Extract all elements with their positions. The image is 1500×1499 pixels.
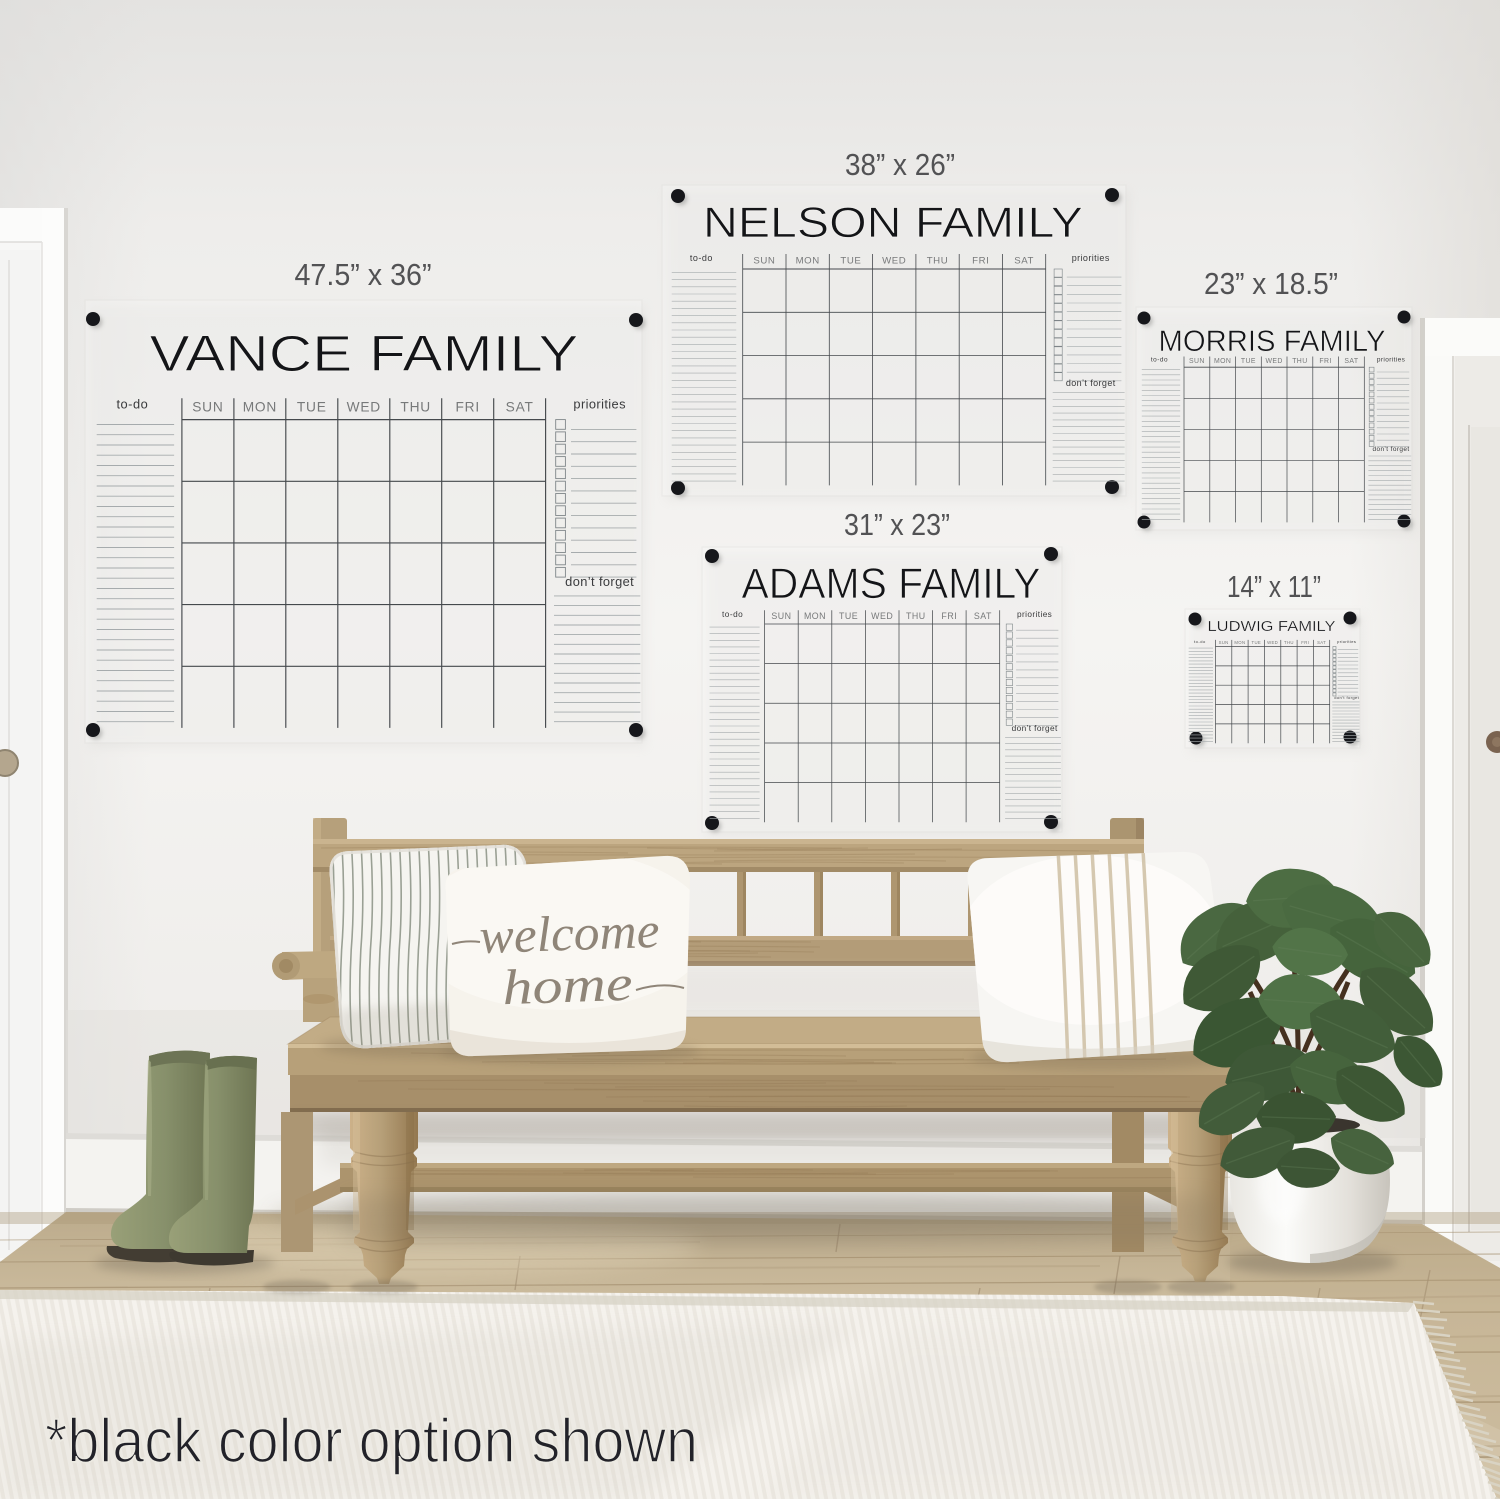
svg-text:SUN: SUN — [753, 255, 775, 266]
svg-text:23” x 18.5”: 23” x 18.5” — [1204, 266, 1338, 301]
svg-text:THU: THU — [400, 400, 431, 415]
svg-text:SAT: SAT — [1317, 640, 1326, 645]
svg-text:to-do: to-do — [690, 253, 713, 263]
svg-text:don’t forget: don’t forget — [1372, 446, 1409, 453]
svg-text:THU: THU — [906, 611, 926, 621]
svg-text:welcome: welcome — [478, 902, 660, 964]
svg-text:THU: THU — [1292, 358, 1307, 365]
svg-text:WED: WED — [1267, 640, 1278, 645]
svg-text:ADAMS FAMILY: ADAMS FAMILY — [742, 560, 1041, 608]
svg-text:priorities: priorities — [1017, 610, 1052, 619]
svg-text:don’t forget: don’t forget — [1012, 724, 1058, 733]
svg-text:to-do: to-do — [1151, 357, 1168, 364]
svg-text:don’t forget: don’t forget — [1066, 378, 1116, 388]
svg-text:TUE: TUE — [839, 611, 858, 621]
svg-text:FRI: FRI — [1319, 358, 1331, 365]
svg-text:SAT: SAT — [506, 400, 534, 415]
svg-text:WED: WED — [347, 400, 381, 415]
svg-text:priorities: priorities — [1377, 357, 1405, 364]
svg-text:MON: MON — [1234, 640, 1245, 645]
svg-text:MON: MON — [243, 400, 277, 415]
svg-text:38” x 26”: 38” x 26” — [845, 147, 955, 182]
svg-text:SUN: SUN — [192, 400, 223, 415]
svg-text:FRI: FRI — [941, 611, 957, 621]
svg-text:14” x 11”: 14” x 11” — [1227, 569, 1321, 604]
svg-text:MON: MON — [1214, 358, 1231, 365]
svg-text:VANCE FAMILY: VANCE FAMILY — [150, 325, 579, 382]
svg-text:to-do: to-do — [1194, 639, 1206, 644]
svg-text:SAT: SAT — [1344, 358, 1359, 365]
svg-text:SUN: SUN — [1189, 358, 1205, 365]
svg-text:MON: MON — [804, 611, 826, 621]
svg-text:SUN: SUN — [771, 611, 791, 621]
svg-text:WED: WED — [882, 255, 906, 266]
svg-text:31” x 23”: 31” x 23” — [844, 507, 950, 542]
svg-text:WED: WED — [871, 611, 893, 621]
svg-text:priorities: priorities — [573, 397, 625, 412]
svg-text:THU: THU — [1284, 640, 1294, 645]
svg-text:home: home — [501, 955, 633, 1016]
svg-text:NELSON FAMILY: NELSON FAMILY — [703, 199, 1083, 247]
svg-text:priorities: priorities — [1072, 253, 1110, 263]
svg-text:to-do: to-do — [116, 397, 148, 412]
svg-text:MORRIS FAMILY: MORRIS FAMILY — [1159, 325, 1386, 358]
svg-text:FRI: FRI — [1301, 640, 1309, 645]
svg-text:47.5” x 36”: 47.5” x 36” — [295, 257, 432, 292]
svg-text:FRI: FRI — [455, 400, 480, 415]
svg-text:MON: MON — [796, 255, 820, 266]
svg-text:*black color option shown: *black color option shown — [45, 1407, 698, 1476]
svg-text:WED: WED — [1265, 358, 1282, 365]
svg-text:SUN: SUN — [1219, 640, 1229, 645]
svg-text:FRI: FRI — [972, 255, 989, 266]
svg-text:LUDWIG FAMILY: LUDWIG FAMILY — [1208, 618, 1336, 635]
svg-text:TUE: TUE — [1241, 358, 1256, 365]
svg-text:TUE: TUE — [297, 400, 327, 415]
svg-text:to-do: to-do — [722, 610, 743, 619]
svg-text:SAT: SAT — [1014, 255, 1034, 266]
svg-text:THU: THU — [927, 255, 949, 266]
svg-text:TUE: TUE — [1252, 640, 1262, 645]
svg-text:don’t forget: don’t forget — [565, 574, 634, 589]
svg-text:SAT: SAT — [974, 611, 992, 621]
svg-text:priorities: priorities — [1337, 639, 1356, 644]
svg-text:TUE: TUE — [840, 255, 861, 266]
svg-text:don’t forget: don’t forget — [1334, 695, 1359, 700]
